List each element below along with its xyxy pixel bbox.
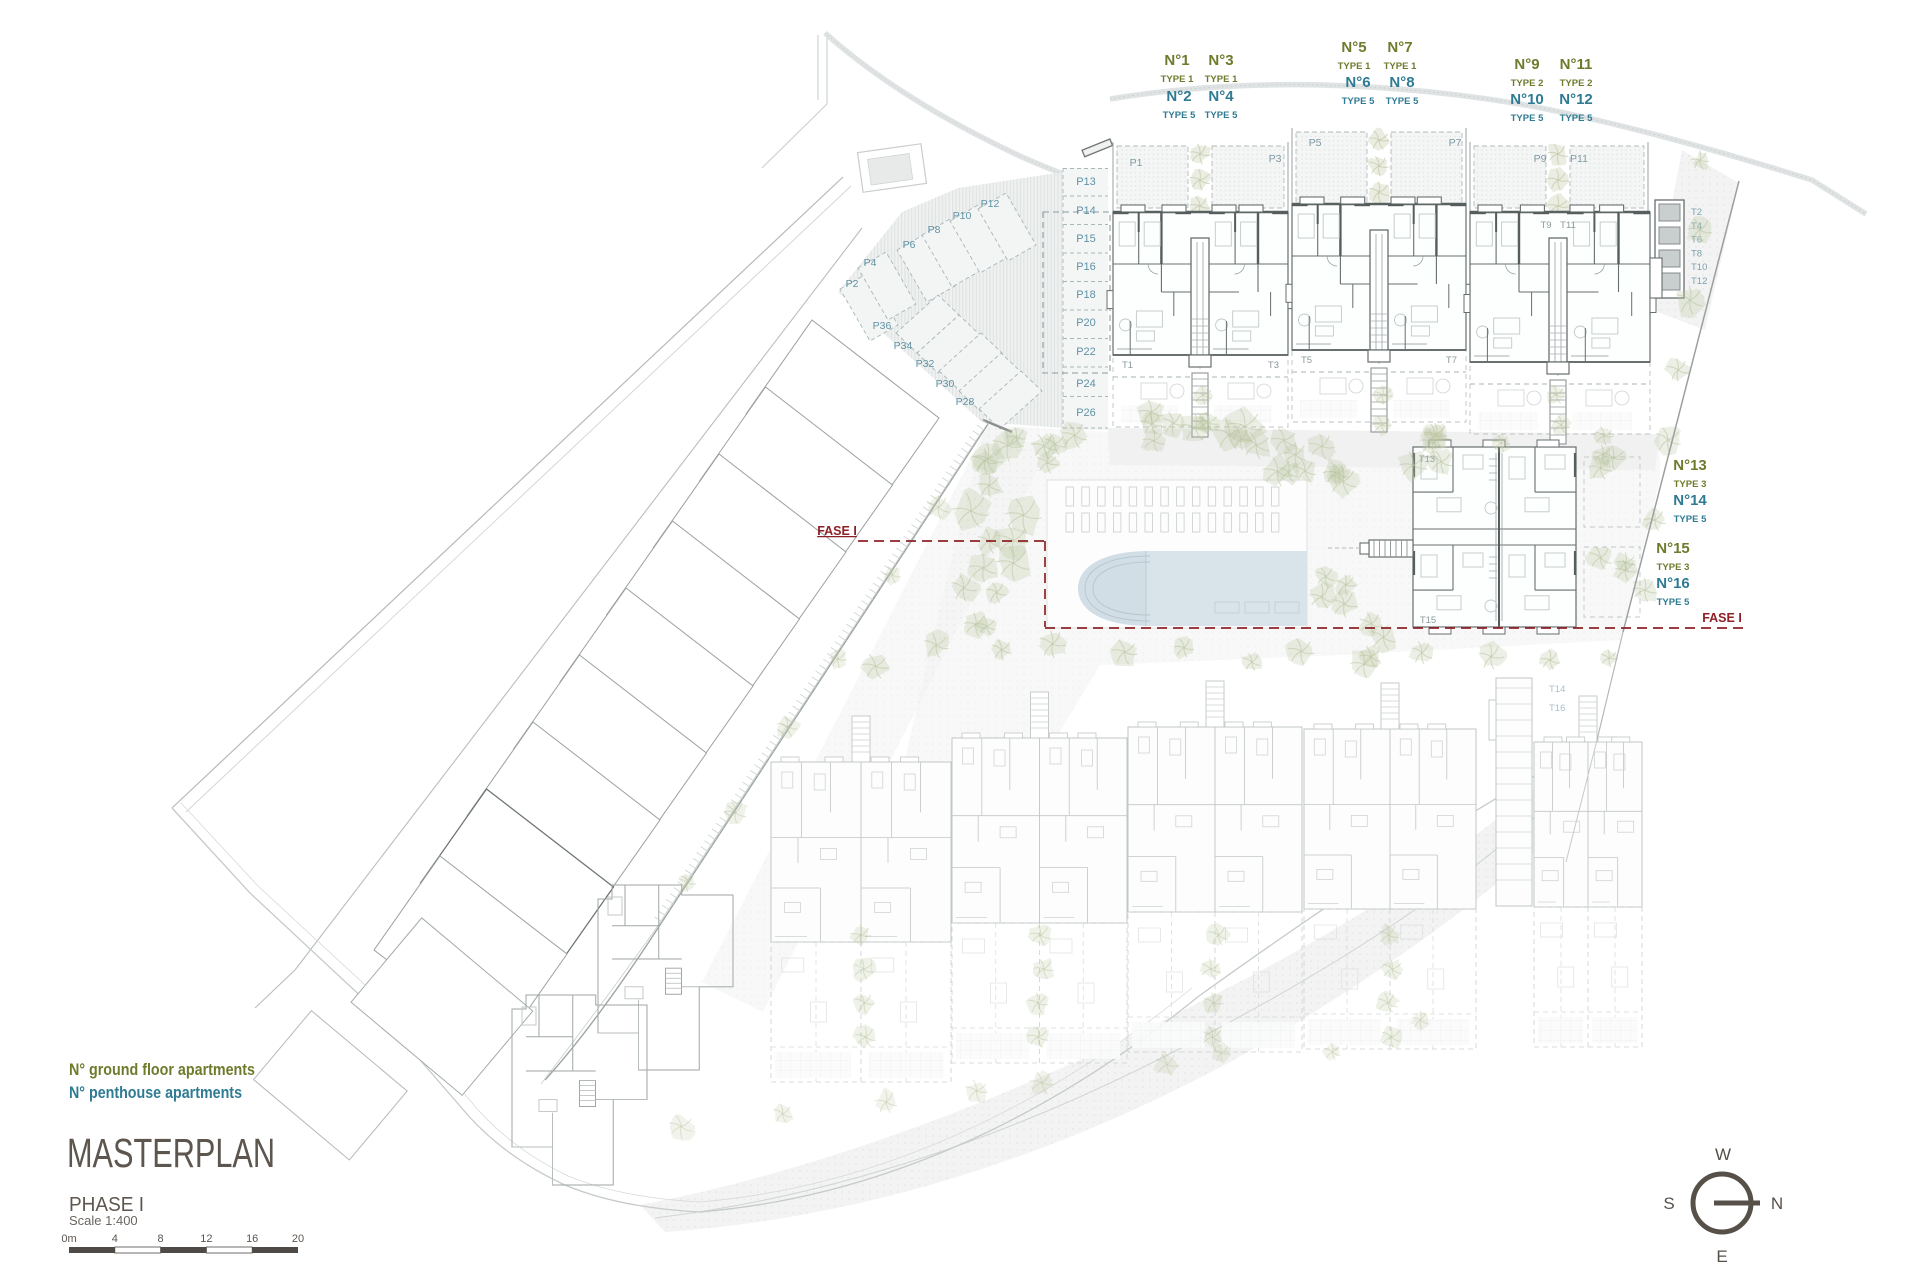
- svg-text:P1: P1: [1130, 157, 1143, 169]
- svg-text:20: 20: [292, 1233, 304, 1245]
- svg-text:N° ground floor apartments: N° ground floor apartments: [69, 1060, 255, 1079]
- svg-text:P18: P18: [1076, 289, 1096, 301]
- svg-text:P14: P14: [1076, 205, 1096, 217]
- svg-text:T16: T16: [1549, 703, 1565, 714]
- svg-text:12: 12: [200, 1233, 212, 1245]
- svg-text:TYPE 5: TYPE 5: [1560, 113, 1593, 124]
- svg-text:T12: T12: [1691, 276, 1707, 287]
- svg-text:4: 4: [112, 1233, 118, 1245]
- svg-text:P26: P26: [1076, 407, 1096, 419]
- svg-text:TYPE 1: TYPE 1: [1384, 61, 1417, 72]
- svg-text:P8: P8: [928, 224, 941, 236]
- svg-text:P12: P12: [981, 198, 1000, 210]
- svg-text:E: E: [1716, 1247, 1727, 1266]
- svg-text:TYPE 3: TYPE 3: [1674, 479, 1707, 490]
- svg-text:P9: P9: [1534, 153, 1547, 165]
- svg-text:N°2: N°2: [1166, 88, 1191, 105]
- svg-text:N°6: N°6: [1345, 74, 1370, 91]
- svg-text:0m: 0m: [61, 1233, 76, 1245]
- svg-text:T10: T10: [1691, 262, 1707, 273]
- svg-text:TYPE 1: TYPE 1: [1205, 74, 1238, 85]
- svg-text:N°15: N°15: [1656, 540, 1690, 557]
- svg-text:N° penthouse apartments: N° penthouse apartments: [69, 1083, 242, 1102]
- svg-text:T1: T1: [1122, 360, 1133, 371]
- svg-text:P22: P22: [1076, 346, 1096, 358]
- svg-text:N°9: N°9: [1514, 56, 1539, 73]
- svg-text:P10: P10: [953, 210, 972, 222]
- svg-text:N°7: N°7: [1387, 39, 1412, 56]
- svg-text:P15: P15: [1076, 233, 1096, 245]
- svg-text:TYPE 1: TYPE 1: [1161, 74, 1194, 85]
- svg-text:TYPE 5: TYPE 5: [1511, 113, 1544, 124]
- svg-text:T8: T8: [1691, 248, 1702, 259]
- svg-text:P36: P36: [873, 320, 892, 332]
- svg-text:P5: P5: [1309, 137, 1322, 149]
- svg-text:TYPE 1: TYPE 1: [1338, 61, 1371, 72]
- svg-text:P30: P30: [936, 378, 955, 390]
- svg-text:TYPE 5: TYPE 5: [1205, 110, 1238, 121]
- svg-text:T11: T11: [1560, 220, 1576, 231]
- svg-text:N°5: N°5: [1341, 39, 1366, 56]
- svg-text:P13: P13: [1076, 176, 1096, 188]
- svg-text:N°8: N°8: [1389, 74, 1414, 91]
- svg-text:N°13: N°13: [1673, 457, 1707, 474]
- svg-text:P7: P7: [1449, 137, 1462, 149]
- svg-text:P6: P6: [903, 239, 916, 251]
- svg-text:N°3: N°3: [1208, 52, 1233, 69]
- svg-text:8: 8: [158, 1233, 164, 1245]
- svg-text:T5: T5: [1301, 355, 1312, 366]
- svg-text:P16: P16: [1076, 261, 1096, 273]
- svg-text:T7: T7: [1446, 355, 1457, 366]
- svg-text:P20: P20: [1076, 317, 1096, 329]
- svg-text:T14: T14: [1549, 684, 1565, 695]
- svg-text:S: S: [1663, 1194, 1674, 1213]
- svg-text:T3: T3: [1268, 360, 1279, 371]
- svg-text:T15: T15: [1420, 615, 1436, 626]
- svg-text:Scale 1:400: Scale 1:400: [69, 1213, 138, 1228]
- svg-text:TYPE 2: TYPE 2: [1560, 78, 1593, 89]
- svg-text:T9: T9: [1540, 220, 1551, 231]
- svg-text:P3: P3: [1269, 153, 1282, 165]
- svg-text:TYPE 5: TYPE 5: [1674, 514, 1707, 525]
- svg-text:N: N: [1771, 1194, 1783, 1213]
- svg-text:P11: P11: [1570, 153, 1588, 165]
- svg-text:W: W: [1715, 1145, 1731, 1164]
- svg-text:N°11: N°11: [1560, 56, 1593, 73]
- svg-text:FASE I: FASE I: [1702, 611, 1742, 625]
- svg-text:TYPE 5: TYPE 5: [1386, 96, 1419, 107]
- svg-text:N°1: N°1: [1164, 52, 1189, 69]
- svg-text:TYPE 5: TYPE 5: [1657, 597, 1690, 608]
- svg-text:TYPE 3: TYPE 3: [1657, 562, 1690, 573]
- svg-text:TYPE 5: TYPE 5: [1163, 110, 1196, 121]
- svg-text:P34: P34: [894, 340, 913, 352]
- svg-text:P4: P4: [864, 257, 877, 269]
- svg-text:TYPE 5: TYPE 5: [1342, 96, 1375, 107]
- svg-text:TYPE 2: TYPE 2: [1511, 78, 1544, 89]
- svg-text:N°4: N°4: [1208, 88, 1234, 105]
- svg-text:N°12: N°12: [1559, 91, 1593, 108]
- svg-text:P32: P32: [916, 358, 935, 370]
- svg-text:P24: P24: [1076, 378, 1096, 390]
- svg-text:N°16: N°16: [1656, 575, 1690, 592]
- svg-text:N°10: N°10: [1510, 91, 1544, 108]
- svg-text:16: 16: [246, 1233, 258, 1245]
- svg-text:P2: P2: [846, 278, 859, 290]
- svg-text:N°14: N°14: [1673, 492, 1707, 509]
- svg-text:MASTERPLAN: MASTERPLAN: [67, 1130, 275, 1176]
- svg-text:FASE I: FASE I: [817, 524, 857, 538]
- svg-text:P28: P28: [956, 396, 975, 408]
